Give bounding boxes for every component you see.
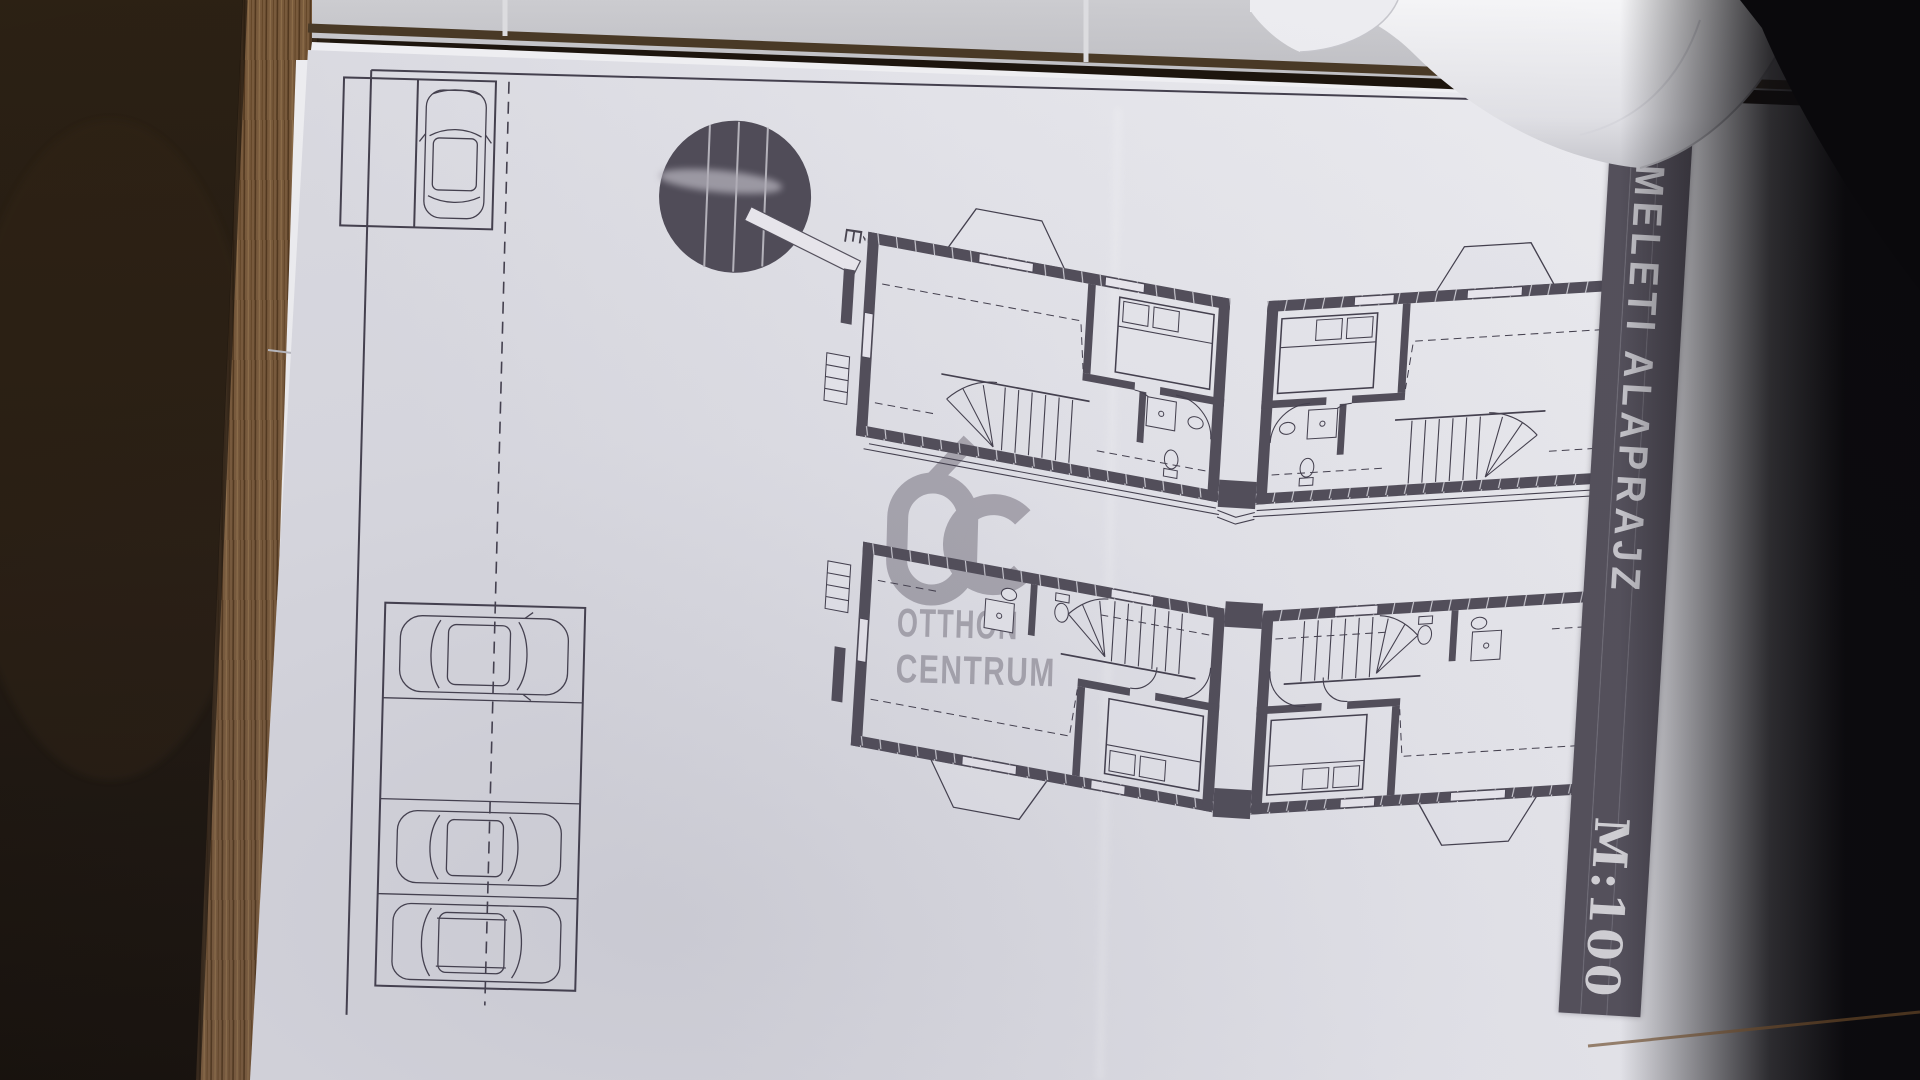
sheet-title: EMELETI ALAPRAJZ — [1601, 133, 1675, 597]
scale-label: M:100 — [1573, 815, 1639, 1000]
photo-of-floor-plan: É OTTHON CENTRUM — [0, 0, 1920, 1080]
watermark-line2: CENTRUM — [895, 647, 1056, 695]
